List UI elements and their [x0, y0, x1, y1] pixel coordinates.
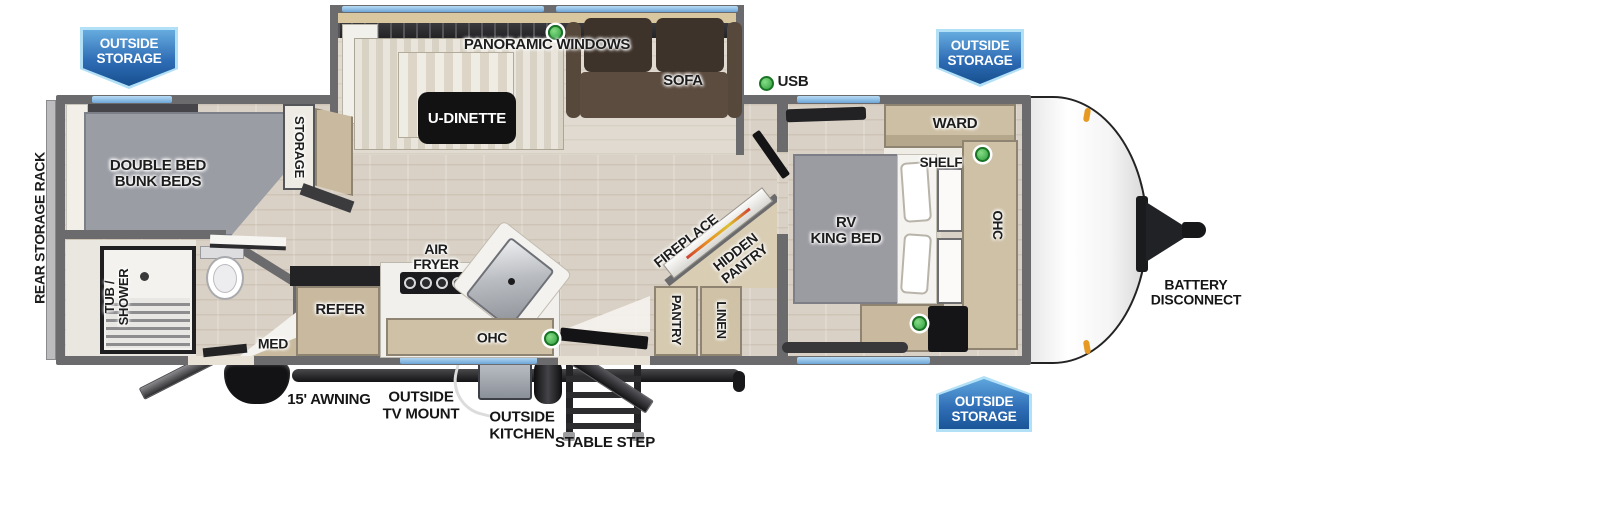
stove-burner — [420, 277, 432, 289]
awning-end-knob — [733, 371, 745, 392]
front-cap — [1024, 96, 1148, 364]
window — [400, 357, 537, 364]
outside-storage-badge-bottom-right: OUTSIDE STORAGE — [936, 376, 1032, 432]
window — [92, 96, 172, 103]
bedroom-black-unit — [928, 306, 968, 352]
shower-drain — [140, 272, 149, 281]
slideout-window — [556, 6, 738, 12]
ward-label: WARD — [933, 116, 978, 132]
rv-king-bed-label: RV KING BED — [811, 215, 882, 247]
badge-text: OUTSIDE STORAGE — [936, 394, 1032, 424]
hitch-coupler — [1182, 222, 1206, 238]
vanity-counter — [210, 235, 286, 251]
rear-storage-rack-label: REAR STORAGE RACK — [33, 152, 48, 304]
sofa-label: SOFA — [663, 73, 703, 89]
outside-kitchen-label: OUTSIDE KITCHEN — [489, 410, 554, 443]
rear-entry-step — [224, 362, 290, 404]
outside-tv-mount-label: OUTSIDE TV MOUNT — [383, 390, 460, 423]
rv-floorplan: U-DINETTE — [0, 0, 1600, 507]
stove-burner — [404, 277, 416, 289]
stable-step-rung — [566, 408, 641, 414]
rear-door-threshold — [188, 356, 254, 365]
bunk-beds-label: DOUBLE BED BUNK BEDS — [110, 158, 206, 190]
linen-label: LINEN — [714, 301, 728, 339]
awning-label: 15' AWNING — [287, 392, 371, 409]
air-fryer-knob — [508, 278, 515, 285]
stable-step-rung — [566, 423, 641, 429]
med-label: MED — [258, 337, 288, 352]
sofa — [566, 16, 742, 122]
kitchen-ohc-label: OHC — [477, 331, 507, 346]
refer-label: REFER — [315, 302, 364, 318]
toilet-bowl-inner — [213, 264, 237, 293]
bedroom-slide-bar — [782, 342, 908, 353]
panoramic-windows-label: PANORAMIC WINDOWS — [464, 37, 630, 53]
bedside-shelf-box — [937, 168, 963, 232]
bath-wall-horizontal — [64, 230, 226, 239]
usb-indicator-dot — [975, 147, 990, 162]
storage-label: STORAGE — [292, 116, 306, 178]
badge-text: OUTSIDE STORAGE — [80, 36, 178, 66]
slideout-window — [342, 6, 544, 12]
window — [797, 96, 880, 103]
pillow — [900, 233, 932, 295]
refrigerator — [296, 286, 380, 356]
pillow — [900, 161, 932, 223]
storage-corner-cabinet — [315, 108, 353, 196]
bedside-shelf-box — [937, 238, 963, 304]
sofa-seat — [580, 72, 728, 118]
usb-indicator-dot — [544, 331, 559, 346]
badge-text: OUTSIDE STORAGE — [936, 38, 1024, 68]
kitchen-ohc — [386, 318, 554, 356]
pantry-label: PANTRY — [669, 295, 683, 345]
usb-indicator-dot — [912, 316, 927, 331]
bunk-shelf — [88, 104, 198, 112]
stable-step-label: STABLE STEP — [555, 435, 655, 452]
shelf-label: SHELF — [920, 156, 963, 170]
bedroom-tv — [786, 107, 866, 123]
u-dinette-label: U-DINETTE — [428, 110, 506, 127]
sofa-arm-right — [727, 22, 742, 118]
entry-threshold — [558, 356, 650, 365]
window — [797, 357, 930, 364]
outside-storage-badge-top-left: OUTSIDE STORAGE — [80, 27, 178, 89]
tub-shower-label: TUB / SHOWER — [103, 269, 131, 326]
bedroom-ohc-label: OHC — [990, 210, 1004, 239]
usb-indicator-dot — [759, 76, 774, 91]
bedroom-ohc-cabinet — [962, 140, 1018, 350]
battery-disconnect-label: BATTERY DISCONNECT — [1151, 278, 1242, 309]
outside-storage-badge-top-right: OUTSIDE STORAGE — [936, 29, 1024, 87]
usb-label: USB — [778, 74, 809, 90]
sofa-back-cushion — [656, 18, 724, 72]
stove-burner — [436, 277, 448, 289]
u-dinette-label-box: U-DINETTE — [418, 92, 516, 144]
hitch-a-frame — [1146, 202, 1186, 262]
air-fryer-label: AIR FRYER — [413, 242, 458, 272]
outside-kitchen-unit — [478, 362, 532, 400]
